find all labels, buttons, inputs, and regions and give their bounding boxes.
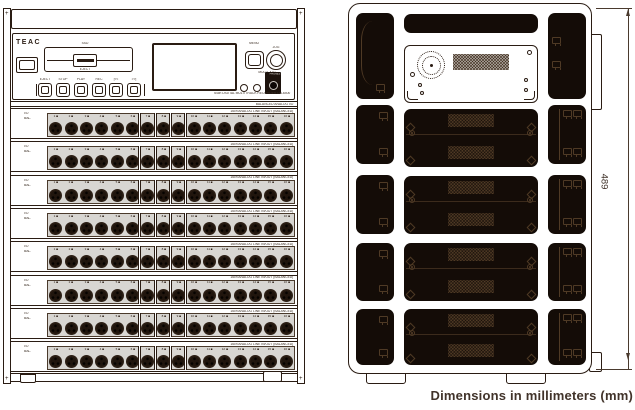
connector-glyph — [376, 84, 385, 91]
connector-glyph — [563, 314, 572, 321]
module-seam — [406, 134, 536, 135]
arrow-up-icon — [626, 9, 630, 16]
side-module-left — [356, 309, 394, 365]
connector-glyph — [563, 349, 572, 356]
corner-bracket — [527, 156, 537, 166]
side-module-right — [548, 243, 586, 301]
vent-grille — [448, 213, 494, 226]
dimension-line — [628, 8, 629, 370]
connector-glyph — [563, 285, 572, 292]
connector-glyph — [379, 148, 388, 155]
connector-glyph — [379, 112, 388, 119]
amp-module-rear — [404, 309, 538, 365]
corner-bracket — [407, 91, 418, 100]
corner-bracket — [524, 91, 535, 100]
connector-glyph — [573, 180, 582, 187]
connector-glyph — [573, 349, 582, 356]
module-seam — [559, 109, 560, 160]
cable-curve — [361, 21, 380, 85]
vent-grille — [448, 114, 494, 127]
screw-hole — [410, 72, 415, 77]
blank-module — [404, 14, 538, 33]
corner-bracket — [527, 290, 537, 300]
vent-grille — [448, 344, 494, 357]
module-seam — [559, 313, 560, 361]
corner-bracket — [406, 354, 416, 364]
screw-hole — [527, 50, 532, 55]
vent-grille — [453, 54, 509, 70]
connector-glyph — [563, 180, 572, 187]
arrow-down-icon — [626, 353, 630, 360]
corner-bracket — [406, 223, 416, 233]
connector-glyph — [573, 248, 582, 255]
connector-glyph — [379, 285, 388, 292]
module-seam — [406, 201, 536, 202]
module-seam — [559, 247, 560, 297]
dimension-label: 489 — [599, 170, 610, 194]
connector-glyph — [379, 349, 388, 356]
rear-cabinet — [348, 3, 592, 374]
recorder-rear-module — [404, 45, 538, 103]
dimension-ext-bottom — [596, 369, 632, 370]
amp-module-rear — [404, 109, 538, 167]
connector-glyph — [573, 285, 582, 292]
connector-hole — [418, 83, 422, 87]
side-module-right — [548, 309, 586, 365]
side-module-left — [356, 13, 394, 99]
side-module-left — [356, 243, 394, 301]
connector-glyph — [573, 218, 582, 225]
module-seam — [406, 268, 536, 269]
corner-bracket — [406, 290, 416, 300]
connector-glyph — [379, 182, 388, 189]
corner-bracket — [406, 156, 416, 166]
connector-glyph — [379, 316, 388, 323]
corner-bracket — [527, 354, 537, 364]
amp-module-rear — [404, 243, 538, 301]
side-module-left — [356, 175, 394, 234]
vent-grille — [448, 280, 494, 293]
connector-glyph — [563, 148, 572, 155]
caption: Dimensions in millimeters (mm) — [431, 388, 634, 403]
connector-hole — [524, 78, 528, 82]
corner-bracket — [527, 223, 537, 233]
side-module-left — [356, 105, 394, 164]
side-module-right — [548, 175, 586, 234]
connector-glyph — [573, 314, 582, 321]
connector-glyph — [552, 37, 561, 44]
vent-grille — [448, 181, 494, 194]
connector-glyph — [379, 218, 388, 225]
connector-glyph — [563, 218, 572, 225]
amp-module-rear — [404, 176, 538, 234]
vent-grille — [448, 248, 494, 261]
rear-view: 489 — [0, 0, 635, 410]
connector-hole — [420, 91, 424, 95]
connector-glyph — [379, 250, 388, 257]
module-seam — [406, 334, 536, 335]
vent-grille — [448, 146, 494, 159]
connector-glyph — [563, 248, 572, 255]
module-seam — [559, 179, 560, 230]
connector-glyph — [552, 61, 561, 68]
connector-glyph — [573, 110, 582, 117]
side-module-right — [548, 13, 586, 99]
connector-glyph — [563, 110, 572, 117]
connector-glyph — [573, 148, 582, 155]
dimension-drawing: + + + + TEAC SSD EJECT EJECTSTOPPLAYREC|… — [0, 0, 635, 410]
fan-grille — [417, 51, 445, 79]
side-module-right — [548, 105, 586, 164]
vent-grille — [448, 314, 494, 327]
